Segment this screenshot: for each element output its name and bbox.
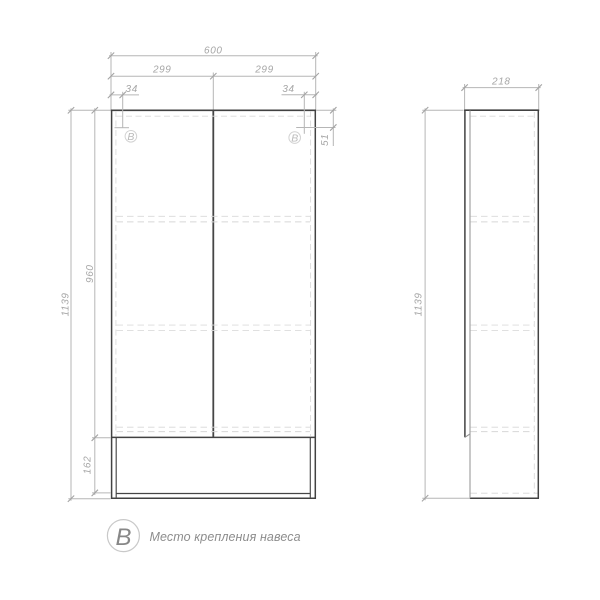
svg-text:218: 218 xyxy=(491,77,511,88)
svg-text:600: 600 xyxy=(204,46,223,57)
svg-text:1139: 1139 xyxy=(61,292,72,316)
svg-text:299: 299 xyxy=(254,64,274,75)
svg-text:162: 162 xyxy=(83,456,94,475)
svg-text:51: 51 xyxy=(320,134,331,146)
svg-text:В: В xyxy=(127,131,134,143)
svg-text:960: 960 xyxy=(85,264,96,283)
svg-text:Место крепления навеса: Место крепления навеса xyxy=(150,530,301,544)
svg-text:34: 34 xyxy=(282,84,294,95)
svg-text:1139: 1139 xyxy=(413,292,424,316)
svg-text:В: В xyxy=(115,524,131,551)
svg-text:299: 299 xyxy=(152,64,172,75)
svg-text:34: 34 xyxy=(126,84,138,95)
svg-text:В: В xyxy=(291,133,298,145)
